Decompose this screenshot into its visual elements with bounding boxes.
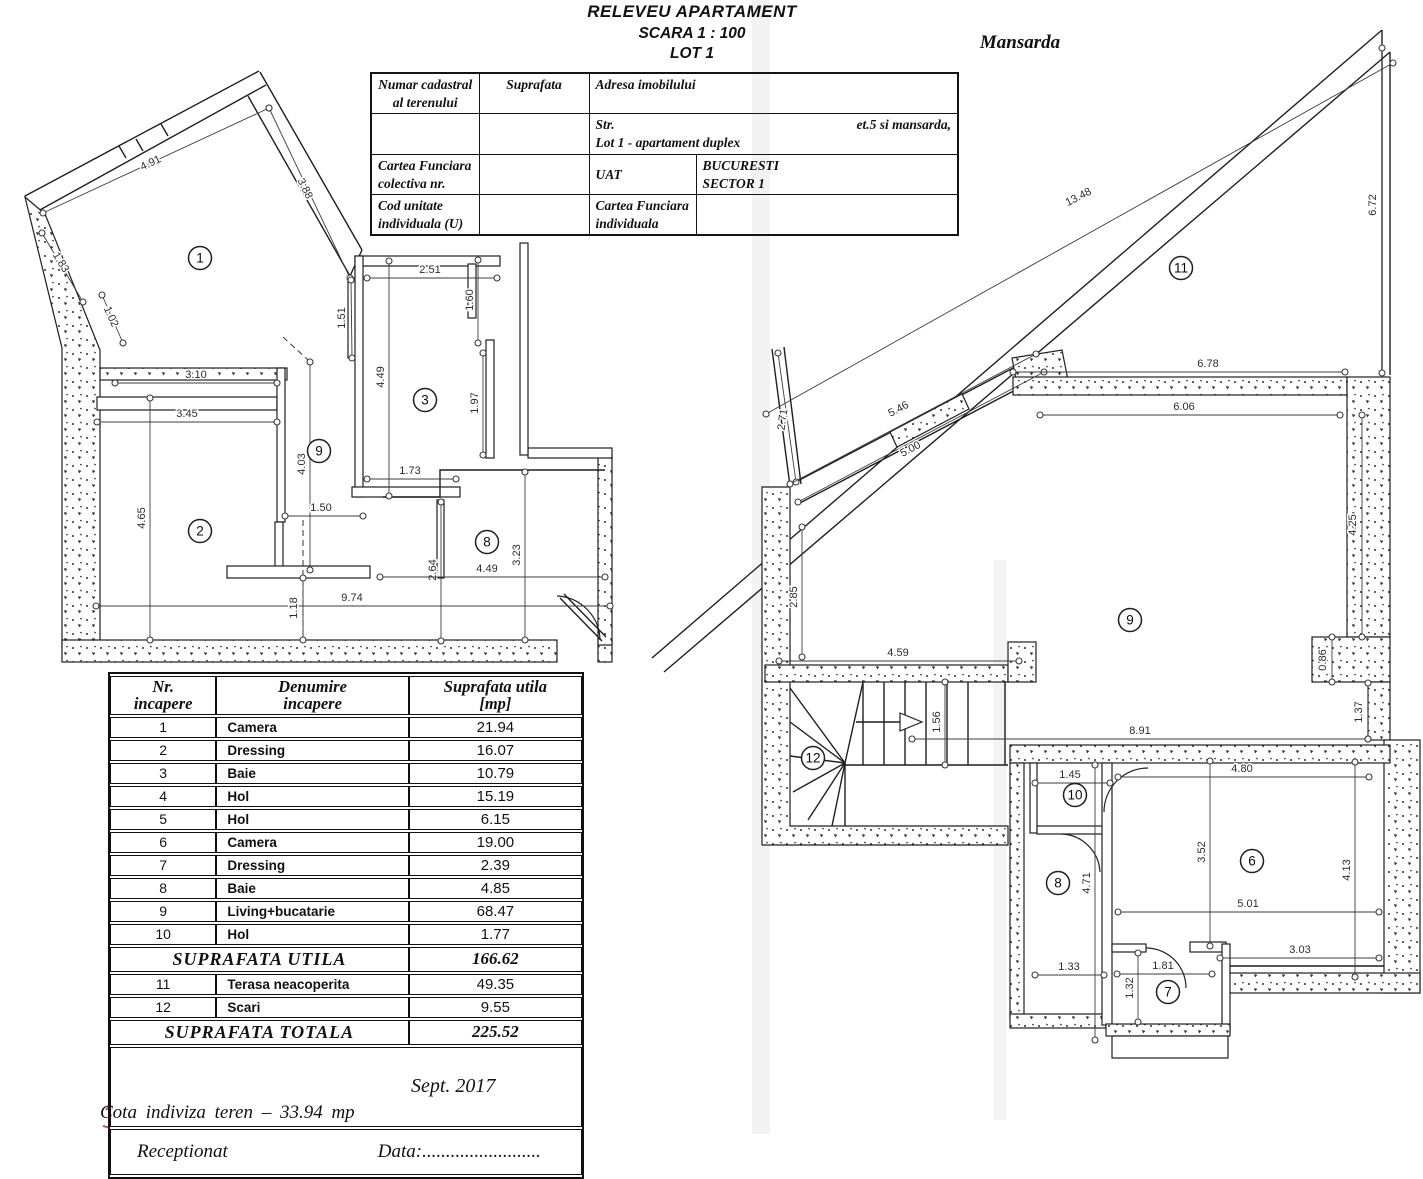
reception-row: Receptionat Data:.......................… [110,1129,582,1175]
table-cell: Camera [216,832,408,853]
total-value: 225.52 [409,1020,582,1045]
dimension-label: 4.49 [375,366,387,387]
dimension-endpoint [480,452,486,458]
receptionat-label: Receptionat [137,1141,228,1163]
dimension-endpoint [1115,909,1121,915]
dimension-endpoint [1207,758,1213,764]
dimension-endpoint [360,513,366,519]
page-title: RELEVEU APARTAMENT [472,2,912,22]
table-cell: Dressing [216,740,408,761]
table-cell: 4 [110,786,216,807]
subtotal-label: SUPRAFATA UTILA [110,947,409,972]
dimension-endpoint [942,679,948,685]
table-row: 10Hol1.77 [110,924,582,945]
table-row: 5Hol6.15 [110,809,582,830]
dimension-endpoint [1390,60,1396,66]
dimension-endpoint [386,493,392,499]
dimension-endpoint [795,499,801,505]
table-cell: 49.35 [409,974,582,995]
dimension-label: 5.46 [886,399,911,420]
dimension-endpoint [1359,634,1365,640]
cadastral-cell: BUCURESTI SECTOR 1 [696,155,958,195]
dimension-label: 4.80 [1231,763,1252,775]
table-cell: Baie [216,763,408,784]
dimension-endpoint [1376,909,1382,915]
col-header-nr: Nr.incapere [110,676,216,715]
dimension-endpoint [1365,736,1371,742]
cadastral-table: Numar cadastral al terenului Suprafata A… [370,72,959,236]
dimension-endpoint [364,275,370,281]
table-cell: 4.85 [409,878,582,899]
table-cell: 68.47 [409,901,582,922]
data-dotted-line: Data:......................... [378,1141,541,1163]
table-cell: 6.15 [409,809,582,830]
cadastral-cell: Numar cadastral al terenului [371,73,479,114]
dimension-endpoint [480,350,486,356]
dimension-label: 6.78 [1197,358,1218,370]
dimension-endpoint [787,481,793,487]
dimension-label: 1.50 [310,502,331,514]
dimension-endpoint [1329,634,1335,640]
dimension-label: 6.72 [1367,194,1379,215]
room-number-label: 9 [315,444,323,459]
dimension-endpoint [1329,679,1335,685]
dimension-endpoint [1114,971,1120,977]
room-number-label: 11 [1174,261,1188,276]
cadastral-cell [479,114,589,155]
table-cell: 21.94 [409,717,582,738]
dimension-label: 4.25 [1347,514,1359,535]
table-cell: 2 [110,740,216,761]
dimension-endpoint [602,574,608,580]
dimension-endpoint [120,340,126,346]
cadastral-cell: Cartea Funciara colectiva nr. [371,155,479,195]
dimension-endpoint [1337,412,1343,418]
dimension-endpoint [942,762,948,768]
floor-label: et.5 si mansarda, [856,116,951,134]
dimension-label: 4.49 [476,563,497,575]
room-number-label: 10 [1067,788,1082,803]
dimension-endpoint [1135,1019,1141,1025]
dimension-endpoint [1033,351,1039,357]
dimension-endpoint [475,340,481,346]
dimension-endpoint [522,469,528,475]
dimension-endpoint [1032,972,1038,978]
dimension-endpoint [307,567,313,573]
dimension-endpoint [1352,759,1358,765]
dimension-label: 1.45 [1059,769,1080,781]
dimension-endpoint [799,654,805,660]
dimension-endpoint [607,603,613,609]
room-number-label: 7 [1164,985,1172,1000]
total-label: SUPRAFATA TOTALA [110,1020,409,1045]
table-cell: 15.19 [409,786,582,807]
dimension-label: 6.06 [1173,401,1194,413]
dimension-endpoint [494,275,500,281]
dimension-endpoint [776,658,782,664]
dimension-endpoint [147,637,153,643]
dimension-endpoint [438,638,444,644]
dimension-endpoint [453,476,459,482]
room-table-body: 1Camera21.942Dressing16.073Baie10.794Hol… [110,717,582,945]
dimension-endpoint [522,637,528,643]
table-cell: Hol [216,924,408,945]
dimension-endpoint [799,524,805,530]
dimension-label: 1.51 [336,307,348,328]
dimension-endpoint [775,350,781,356]
room-number-label: 8 [483,535,491,550]
room-number-label: 6 [1248,854,1256,869]
dimension-label: 8.91 [1129,725,1150,737]
dimension-endpoint [99,292,105,298]
dimension-label: 4.59 [887,647,908,659]
room-number-label: 3 [421,393,429,408]
table-cell: 10 [110,924,216,945]
dimension-label: 1.02 [101,305,121,329]
dimension-label: 4.91 [138,153,162,173]
scanned-survey-page: { "title": {"line1": "RELEVEU APARTAMENT… [0,0,1423,1134]
table-row: 11Terasa neacoperita49.35 [110,974,582,995]
dimension-label: 1.32 [1124,977,1136,998]
dimension-endpoint [1379,370,1385,376]
dimension-endpoint [40,210,46,216]
stair-direction-arrow [900,713,922,731]
dimension-endpoint [80,299,86,305]
room-table-body-annex: 11Terasa neacoperita49.3512Scari9.55 [110,974,582,1018]
dimension-endpoint [364,476,370,482]
cadastral-cell [696,195,958,236]
dimension-endpoint [1135,950,1141,956]
dimension-label: 9.74 [341,592,362,604]
table-cell: Hol [216,809,408,830]
room-number-label: 8 [1054,876,1062,891]
table-cell: Hol [216,786,408,807]
cadastral-cell-address: Str. et.5 si mansarda, Lot 1 - apartamen… [589,114,958,155]
dimension-endpoint [112,380,118,386]
table-cell: Living+bucatarie [216,901,408,922]
dimension-line [790,354,1036,484]
table-row: 7Dressing2.39 [110,855,582,876]
dimension-endpoint [282,513,288,519]
dimension-label: 1.37 [1353,701,1365,722]
cadastral-cell [479,155,589,195]
dimension-endpoint [475,257,481,263]
dimension-endpoint [1032,780,1038,786]
dimension-label: 5.01 [1237,898,1258,910]
scale-label: SCARA 1 : 100 [472,25,912,43]
dimension-label: 2.85 [788,586,800,607]
dimension-endpoint [1359,412,1365,418]
table-cell: 16.07 [409,740,582,761]
dimension-line [798,372,1044,502]
table-row: 3Baie10.79 [110,763,582,784]
dimension-endpoint [1092,762,1098,768]
dimension-label: 4.71 [1081,872,1093,893]
dimension-endpoint [1376,955,1382,961]
room-number-label: 12 [805,751,820,766]
dimension-label: 3.03 [1289,944,1310,956]
cadastral-cell [479,195,589,236]
room-number-label: 2 [196,524,204,539]
dimension-label: 1.56 [931,711,943,732]
dimension-endpoint [438,499,444,505]
dimension-endpoint [1016,658,1022,664]
dimension-endpoint [274,380,280,386]
table-row: 6Camera19.00 [110,832,582,853]
dimension-endpoint [300,637,306,643]
dimension-label: 1.81 [1152,960,1173,972]
dimension-endpoint [1010,369,1016,375]
table-cell: 1 [110,717,216,738]
subtotal-row: SUPRAFATA UTILA 166.62 [110,947,582,972]
dimension-label: 2.64 [427,559,439,580]
dimension-endpoint [1366,774,1372,780]
table-row: 8Baie4.85 [110,878,582,899]
cadastral-cell: UAT [589,155,696,195]
cadastral-cell [371,114,479,155]
table-cell: 12 [110,997,216,1018]
table-row: 4Hol15.19 [110,786,582,807]
table-cell: 7 [110,855,216,876]
table-cell: Dressing [216,855,408,876]
dimension-label: 3.23 [511,544,523,565]
dimension-endpoint [300,575,306,581]
table-cell: 1.77 [409,924,582,945]
dimension-endpoint [763,411,769,417]
dimension-endpoint [1101,972,1107,978]
dimension-label: 4.13 [1341,859,1353,880]
cadastral-cell: Cod unitate individuala (U) [371,195,479,236]
dimension-endpoint [274,419,280,425]
table-cell: Scari [216,997,408,1018]
dimension-endpoint [1352,974,1358,980]
table-header-row: Nr.incapere Denumireincapere Suprafata u… [110,676,582,715]
lot-description: Lot 1 - apartament duplex [596,134,952,152]
table-row: 2Dressing16.07 [110,740,582,761]
dimension-label: 3.52 [1196,841,1208,862]
dimension-endpoint [1115,774,1121,780]
subtotal-value: 166.62 [409,947,582,972]
dimension-label: 3.45 [176,408,197,420]
dimension-endpoint [1107,780,1113,786]
dimension-endpoint [1209,971,1215,977]
street-label: Str. [596,116,615,134]
table-cell: 10.79 [409,763,582,784]
dimension-label: 13.48 [1064,186,1094,209]
cadastral-cell: Suprafata [479,73,589,114]
dimension-endpoint [93,603,99,609]
dimension-endpoint [39,230,45,236]
dimension-endpoint [1365,680,1371,686]
dimension-endpoint [1207,943,1213,949]
table-cell: 9 [110,901,216,922]
dimension-label: 1.97 [469,392,481,413]
dimension-endpoint [909,736,915,742]
table-cell: 3 [110,763,216,784]
dimension-endpoint [94,419,100,425]
table-cell: 8 [110,878,216,899]
dimension-label: 1.18 [288,597,300,618]
table-cell: 6 [110,832,216,853]
dimension-endpoint [307,359,313,365]
room-number-label: 9 [1126,613,1134,628]
table-cell: 2.39 [409,855,582,876]
dimension-endpoint [377,574,383,580]
col-header-denumire: Denumireincapere [216,676,408,715]
cadastral-cell: Adresa imobilului [589,73,958,114]
dimension-endpoint [1342,369,1348,375]
table-cell: 5 [110,809,216,830]
cota-indiviza-note: Cota indiviza teren – 33.94 mp [100,1102,600,1124]
dimension-endpoint [1379,45,1385,51]
table-cell: 9.55 [409,997,582,1018]
dimension-label: 4.65 [136,507,148,528]
title-block: RELEVEU APARTAMENT SCARA 1 : 100 LOT 1 [472,2,912,63]
dimension-label: 1.60 [464,289,476,310]
dimension-label: 2.51 [419,264,440,276]
dimension-endpoint [147,395,153,401]
lot-label: LOT 1 [472,45,912,63]
dimension-label: 4.03 [296,453,308,474]
room-number-label: 1 [196,251,204,266]
dimension-endpoint [1217,955,1223,961]
table-cell: Baie [216,878,408,899]
dimension-endpoint [386,258,392,264]
col-header-suprafata: Suprafata utila[mp] [409,676,582,715]
dimension-label: 1.33 [1058,961,1079,973]
table-row: 9Living+bucatarie68.47 [110,901,582,922]
dimension-label: 3.10 [185,369,206,381]
table-cell: Terasa neacoperita [216,974,408,995]
table-cell: Camera [216,717,408,738]
dimension-endpoint [349,355,355,361]
table-cell: 11 [110,974,216,995]
plan-label-mansarda: Mansarda [920,32,1120,54]
table-row: 1Camera21.94 [110,717,582,738]
table-cell: 19.00 [409,832,582,853]
dimension-endpoint [266,105,272,111]
dimension-endpoint [348,277,354,283]
dimension-label: 0.86 [1317,649,1329,670]
dimension-endpoint [1037,412,1043,418]
dimension-label: 1.73 [399,465,420,477]
cadastral-cell: Cartea Funciara individuala [589,195,696,236]
table-row: 12Scari9.55 [110,997,582,1018]
dimension-endpoint [1092,1037,1098,1043]
total-row: SUPRAFATA TOTALA 225.52 [110,1020,582,1045]
